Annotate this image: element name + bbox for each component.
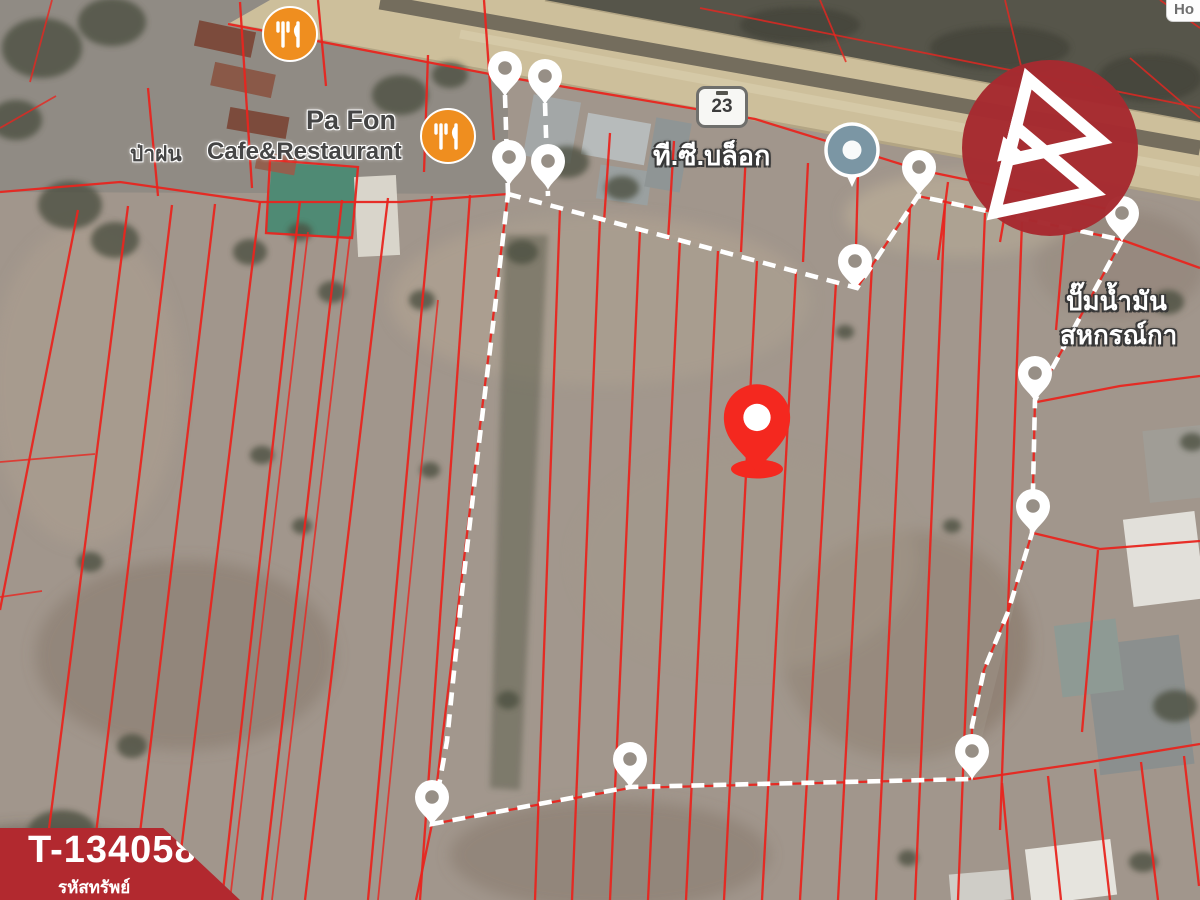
restaurant-icon — [421, 109, 475, 163]
route-shield-emblem — [716, 91, 728, 95]
brand-logo-icon — [962, 60, 1138, 236]
property-code-caption: รหัสทรัพย์ — [58, 874, 130, 900]
cafe-label-name: Pa Fon — [306, 105, 396, 136]
business-circle-icon — [826, 124, 878, 187]
partial-poi-label: Ho — [1166, 0, 1200, 22]
restaurant-icon — [263, 7, 317, 61]
cafe-label-thai: ป่าฝน — [130, 138, 182, 171]
map-canvas — [0, 0, 1200, 900]
cafe-label-type: Cafe&Restaurant — [207, 138, 402, 166]
route-number: 23 — [711, 96, 732, 118]
pond — [266, 162, 358, 238]
vertex-pin — [531, 144, 565, 190]
gas-station-label-line2: สหกรณ์กา — [1060, 315, 1177, 356]
satellite-map-listing-image: ป่าฝน Pa Fon Cafe&Restaurant ที.ซี.บล็อก… — [0, 0, 1200, 900]
route-shield-23: 23 — [696, 86, 748, 128]
factory-label: ที.ซี.บล็อก — [653, 134, 770, 177]
